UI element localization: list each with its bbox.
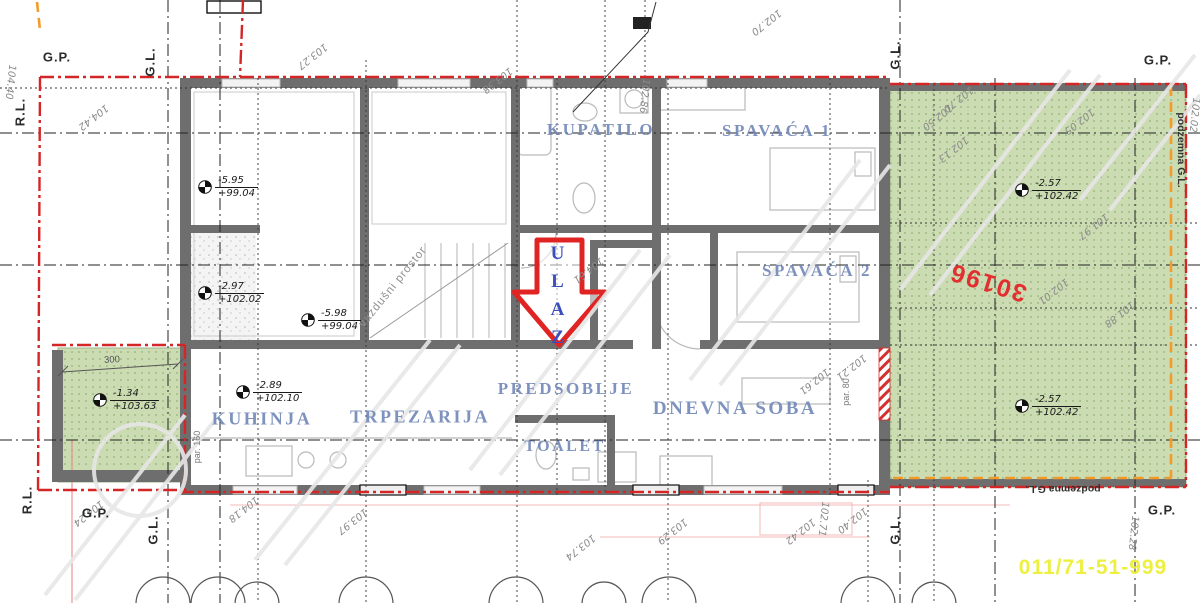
dimension-label: 104.42 [76, 102, 110, 132]
dimension-label: 103.74 [563, 532, 597, 562]
elevation-marker: -5.98+99.04 [301, 308, 361, 332]
elevation-marker: -2.97+102.02 [198, 281, 264, 305]
level-marker-icon [1015, 399, 1029, 413]
dimension-label: 101.97 [1076, 211, 1110, 241]
level-marker-icon [93, 393, 107, 407]
elevation-marker: -1.34+103.63 [93, 388, 159, 412]
underground-line-label-right: podzemna G.L. [1175, 112, 1187, 187]
boundary-label-gl: G.L. [146, 515, 161, 544]
boundary-label-rl: R.L. [13, 98, 28, 127]
boundary-label-gl: G.L. [888, 515, 903, 544]
parcel-number: 30196 [946, 257, 1031, 308]
dimension-label: 103.38 [480, 65, 514, 95]
boundary-label-gp: G.P. [1144, 53, 1172, 68]
elevation-marker: -5.95+99.04 [198, 175, 258, 199]
dimension-label: 102.40 [835, 505, 869, 535]
level-marker-icon [198, 286, 212, 300]
parcel-note-160: par. 160 [192, 431, 202, 464]
floor-plan-canvas: ULAZ vazdušni prostor 30196 011/71-51-99… [0, 0, 1200, 603]
elevation-marker: -2.89+102.10 [236, 380, 302, 404]
dimension-label: 103.27 [295, 41, 329, 71]
dimension-label: 102.42 [783, 516, 817, 546]
dimension-label: 102.01 [1036, 276, 1070, 306]
dimension-label: 104.18 [226, 494, 260, 524]
room-label-toalet: TOALET [524, 438, 605, 456]
boundary-label-gl: G.L. [143, 47, 158, 76]
room-label-kupatilo: KUPATILO [547, 120, 655, 140]
dimension-label: 101.88 [1102, 299, 1136, 329]
room-label-spava-a-2: SPAVAĆA 2 [762, 261, 872, 281]
elevation-marker: -2.57+102.42 [1015, 394, 1081, 418]
dimension-label: 102.28 [1126, 515, 1141, 551]
room-label-trpezarija: TRPEZARIJA [350, 407, 490, 428]
phone-number: 011/71-51-999 [1019, 556, 1167, 580]
boundary-label-rl: R.L. [20, 486, 35, 515]
underground-line-label-bottom: podzemna G.L. [1025, 483, 1100, 495]
boundary-label-gl: G.L. [888, 40, 903, 69]
dimension-label: 102.86 [637, 78, 652, 114]
dimension-label: 102.05 [1062, 106, 1096, 136]
entrance-label: ULAZ [546, 243, 568, 343]
boundary-label-gp: G.P. [43, 50, 71, 65]
level-marker-icon [236, 385, 250, 399]
room-label-kuhinja: KUHINJA [212, 409, 313, 430]
dimension-label: 103.97 [335, 506, 369, 536]
room-label-dnevna-soba: DNEVNA SOBA [653, 398, 817, 420]
dimension-label: 104.61 [571, 255, 605, 285]
dimension-label: 102.21 [834, 352, 868, 382]
dimension-label: 102.61 [797, 366, 831, 396]
dimension-300: 300 [104, 354, 120, 366]
dimension-label: 102.13 [936, 134, 970, 164]
labels-layer: ULAZ vazdušni prostor 30196 011/71-51-99… [0, 0, 1200, 603]
elevation-marker: -2.57+102.42 [1015, 178, 1081, 202]
boundary-label-gp: G.P. [1148, 503, 1176, 518]
level-marker-icon [301, 313, 315, 327]
level-marker-icon [198, 180, 212, 194]
dimension-label: 104.40 [3, 64, 18, 100]
parcel-note-80: par. 80 [841, 378, 851, 406]
room-label-predsoblje: PREDSOBLJE [498, 379, 634, 399]
room-label-spava-a-1: SPAVAĆA 1 [722, 121, 832, 141]
dimension-label: 102.71 [816, 501, 831, 537]
dimension-label: 102.70 [749, 7, 783, 37]
dimension-label: 102.02 [1187, 97, 1200, 133]
dimension-label: 102.70 [941, 84, 975, 114]
boundary-label-gp: G.P. [82, 506, 110, 521]
dimension-label: 103.29 [655, 516, 689, 546]
air-space-label: vazdušni prostor [357, 244, 429, 330]
level-marker-icon [1015, 183, 1029, 197]
